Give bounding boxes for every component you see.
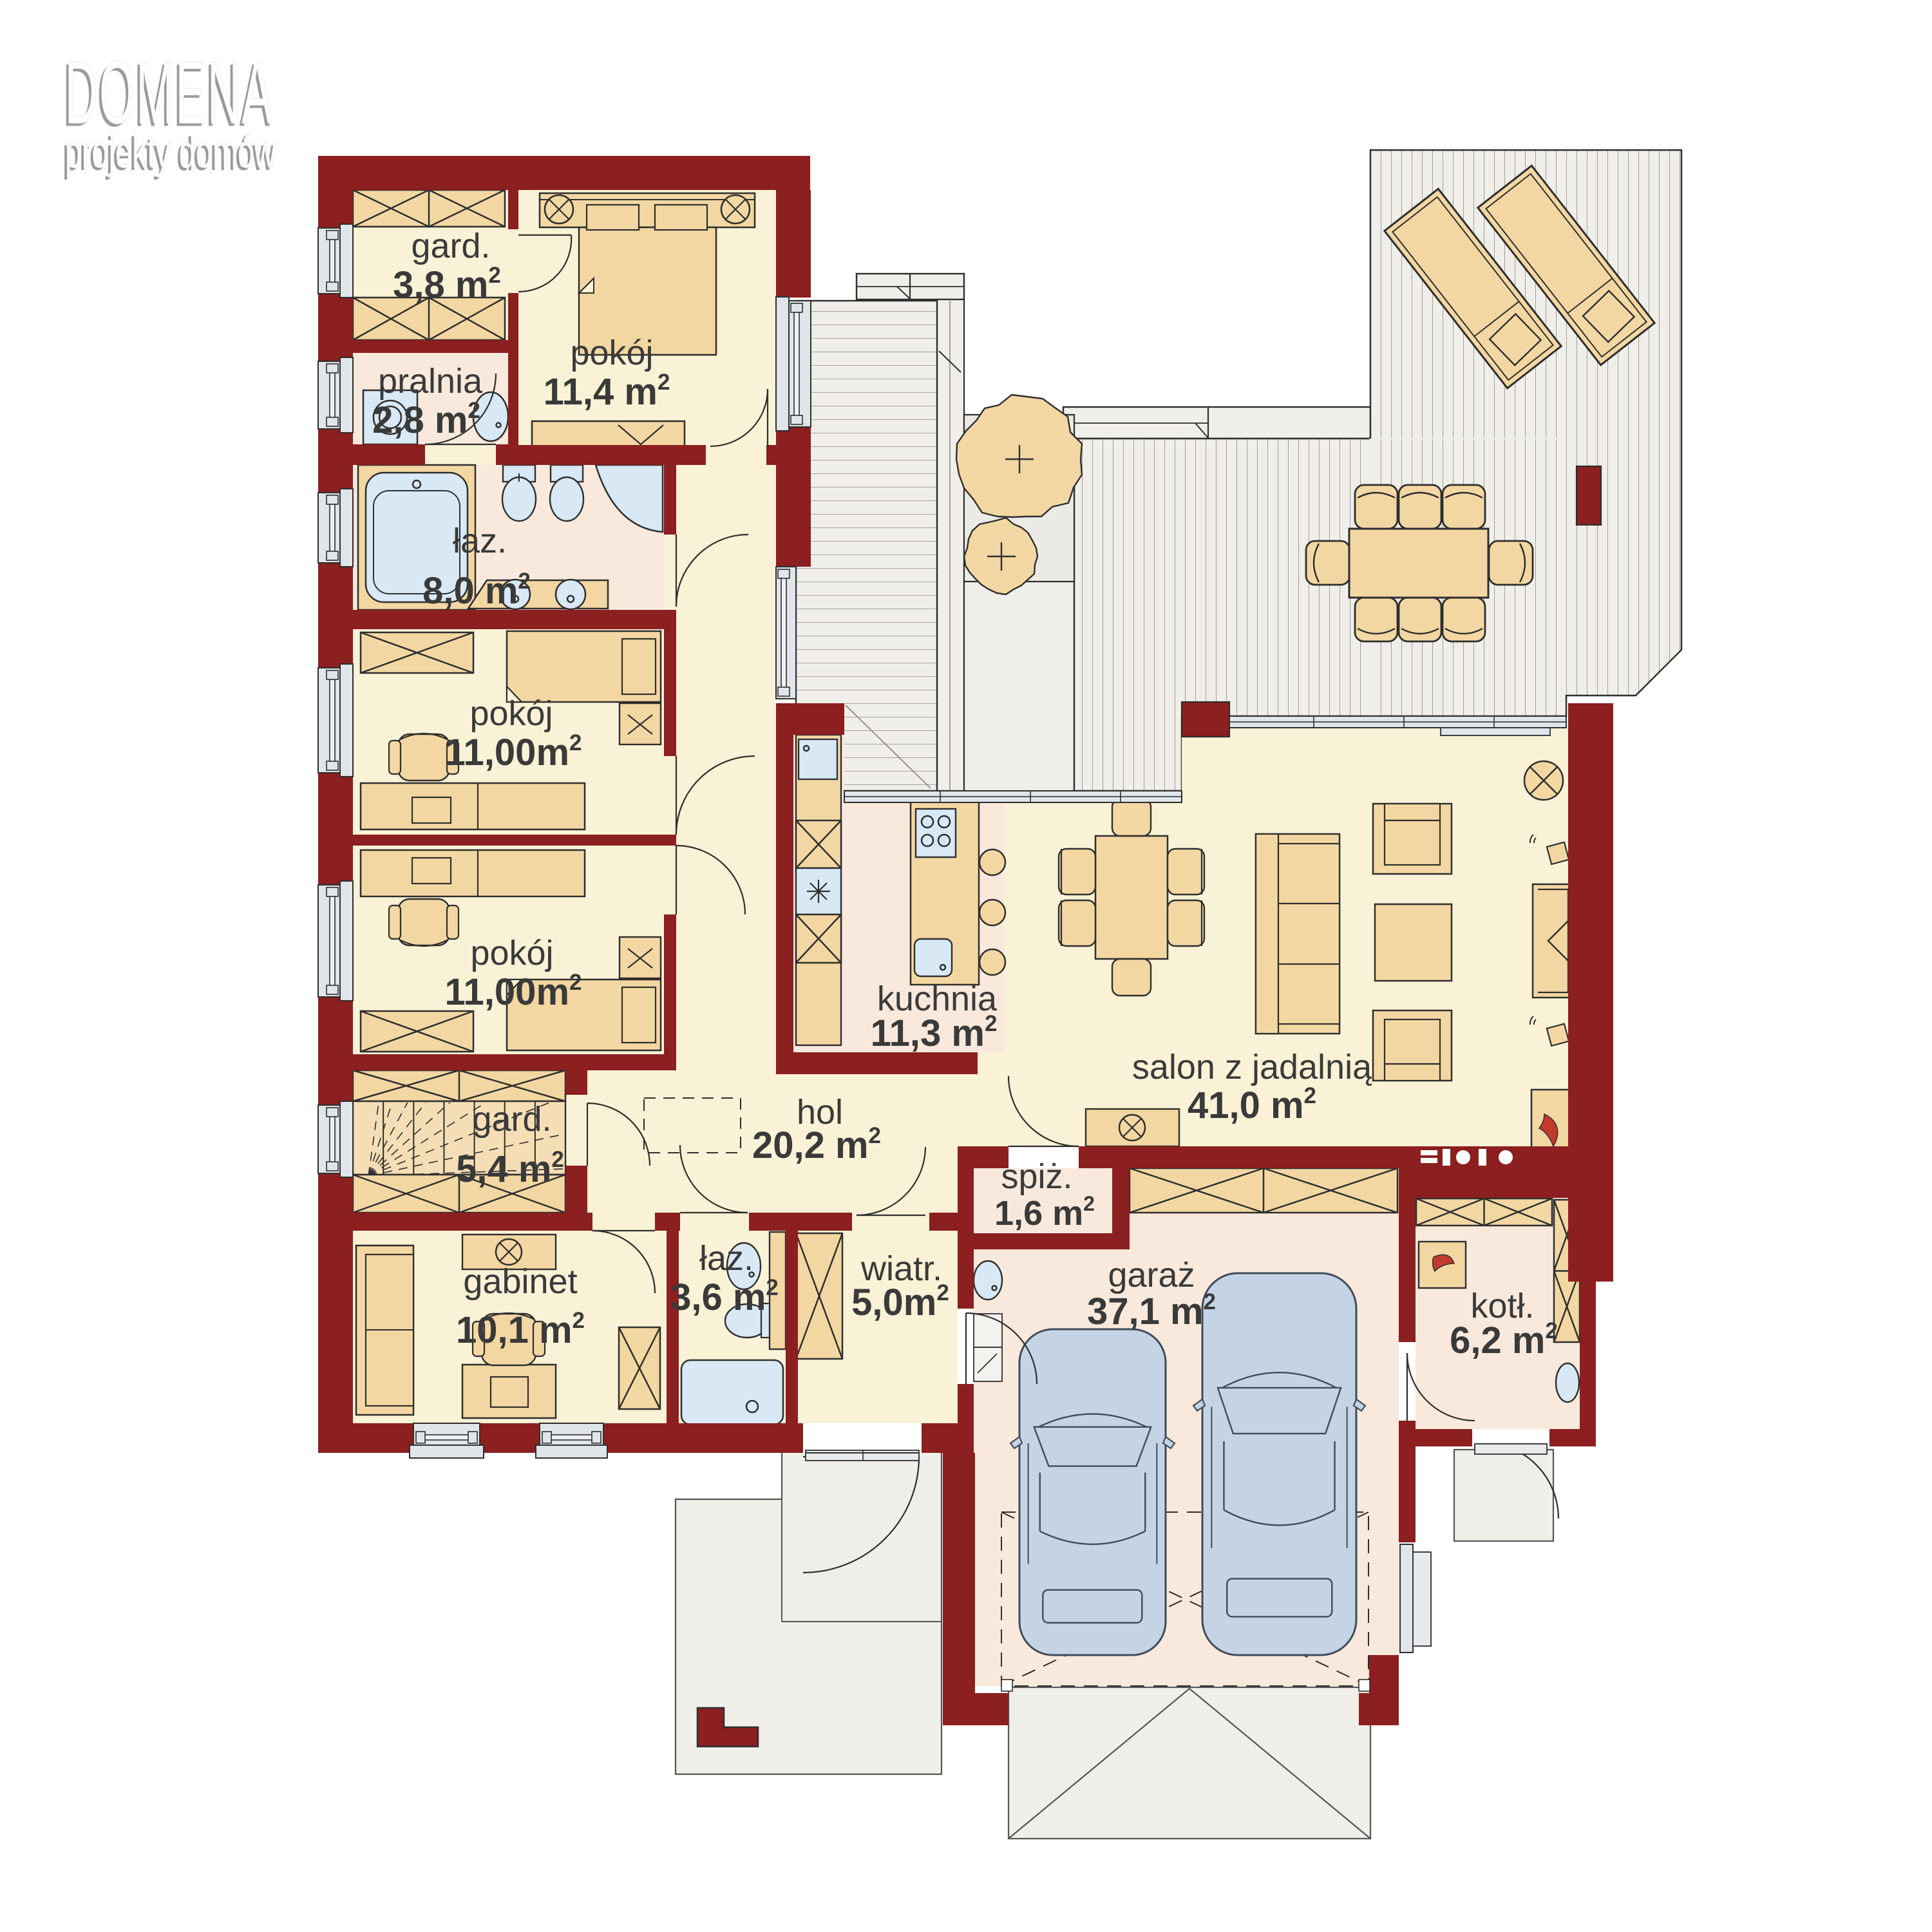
svg-text:11,00m2: 11,00m2 [445, 970, 582, 1013]
svg-text:łaz.: łaz. [453, 522, 507, 560]
svg-text:11,3 m2: 11,3 m2 [871, 1011, 998, 1054]
svg-text:gard.: gard. [472, 1100, 551, 1139]
svg-text:garaż: garaż [1108, 1256, 1195, 1294]
svg-text:pokój: pokój [470, 934, 553, 972]
svg-text:3,8 m2: 3,8 m2 [393, 263, 501, 306]
svg-text:37,1 m2: 37,1 m2 [1087, 1289, 1216, 1332]
svg-text:pokój: pokój [469, 694, 553, 733]
svg-text:spiż.: spiż. [1001, 1157, 1072, 1196]
svg-text:20,2 m2: 20,2 m2 [752, 1123, 881, 1166]
svg-text:10,1 m2: 10,1 m2 [456, 1308, 585, 1351]
svg-text:gabinet: gabinet [463, 1262, 577, 1301]
svg-text:projekty domów: projekty domów [65, 126, 277, 178]
svg-text:gard.: gard. [411, 227, 490, 265]
svg-text:3,6 m2: 3,6 m2 [670, 1275, 779, 1318]
svg-text:8,0 m2: 8,0 m2 [422, 569, 531, 612]
svg-text:5,4 m2: 5,4 m2 [456, 1147, 564, 1190]
svg-text:41,0 m2: 41,0 m2 [1188, 1083, 1316, 1126]
svg-text:11,00m2: 11,00m2 [445, 730, 582, 773]
svg-text:6,2 m2: 6,2 m2 [1450, 1318, 1558, 1361]
svg-text:2,8 m2: 2,8 m2 [372, 398, 480, 441]
svg-text:5,0m2: 5,0m2 [851, 1280, 949, 1323]
svg-text:łaz.: łaz. [699, 1239, 753, 1278]
svg-text:salon z jadalnią: salon z jadalnią [1132, 1048, 1372, 1086]
svg-text:1,6 m2: 1,6 m2 [994, 1192, 1095, 1233]
svg-text:pralnia: pralnia [378, 362, 483, 401]
svg-text:11,4 m2: 11,4 m2 [544, 370, 670, 413]
svg-text:pokój: pokój [570, 334, 653, 372]
